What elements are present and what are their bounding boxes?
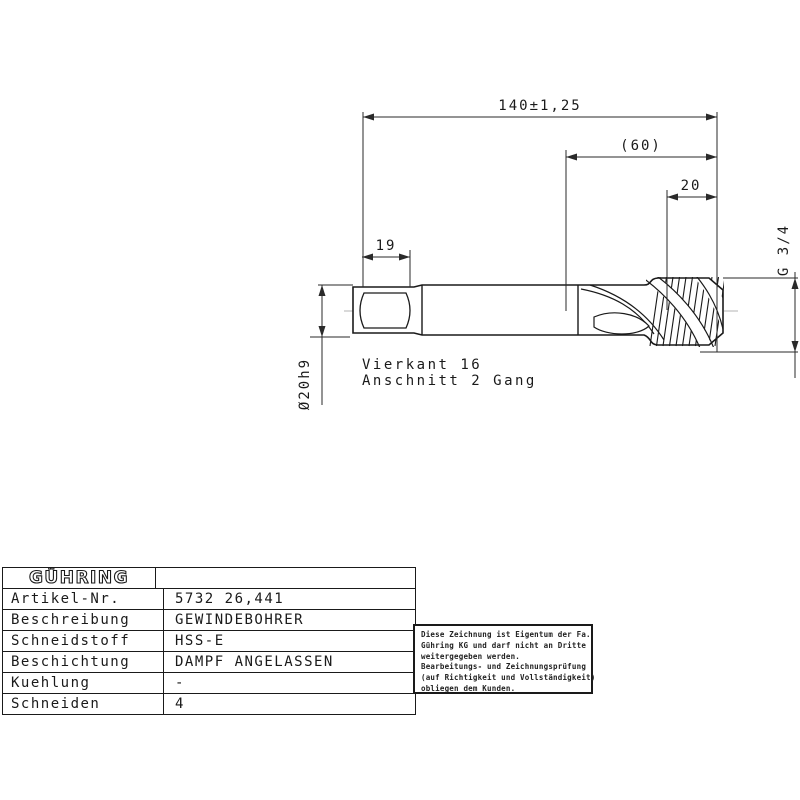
row-value: GEWINDEBOHRER: [164, 610, 415, 630]
disclaimer-line: obliegen dem Kunden.: [421, 684, 591, 695]
row-value: DAMPF ANGELASSEN: [164, 652, 415, 672]
disclaimer-line: Bearbeitungs- und Zeichnungsprüfung: [421, 662, 591, 673]
disclaimer-box: Diese Zeichnung ist Eigentum der Fa. Güh…: [413, 624, 593, 694]
row-value: 5732 26,441: [164, 589, 415, 609]
square-drive: [360, 293, 410, 328]
guehring-logo-icon: GÜHRING: [19, 568, 139, 588]
dim-thread-size: G 3/4: [776, 224, 792, 276]
row-label: Kuehlung: [3, 673, 164, 693]
row-label: Beschreibung: [3, 610, 164, 630]
note-square-drive: Vierkant 16: [362, 357, 482, 373]
row-value: 4: [164, 694, 415, 714]
row-label: Schneidstoff: [3, 631, 164, 651]
dim-overall-length: 140±1,25: [498, 98, 581, 114]
technical-drawing: 140±1,25 (60) 20 19 Ø20h9 G 3/4 Vierkant…: [0, 0, 800, 560]
dim-flute-length: (60): [620, 138, 662, 154]
brand-row-spacer: [156, 568, 415, 588]
table-row: Schneidstoff HSS-E: [3, 630, 415, 651]
row-label: Schneiden: [3, 694, 164, 714]
table-row: Kuehlung -: [3, 672, 415, 693]
disclaimer-line: (auf Richtigkeit und Vollständigkeit): [421, 673, 591, 684]
table-row: Beschreibung GEWINDEBOHRER: [3, 609, 415, 630]
table-row: Beschichtung DAMPF ANGELASSEN: [3, 651, 415, 672]
brand-logo: GÜHRING: [3, 568, 156, 588]
disclaimer-line: Diese Zeichnung ist Eigentum der Fa.: [421, 630, 591, 641]
row-label: Beschichtung: [3, 652, 164, 672]
table-row: Artikel-Nr. 5732 26,441: [3, 588, 415, 609]
row-label: Artikel-Nr.: [3, 589, 164, 609]
svg-text:GÜHRING: GÜHRING: [29, 568, 129, 588]
spec-table: GÜHRING Artikel-Nr. 5732 26,441 Beschrei…: [2, 567, 416, 715]
dim-shank-diameter: Ø20h9: [297, 358, 313, 410]
row-value: HSS-E: [164, 631, 415, 651]
brand-row: GÜHRING: [3, 568, 415, 588]
table-row: Schneiden 4: [3, 693, 415, 714]
drawing-sheet: 140±1,25 (60) 20 19 Ø20h9 G 3/4 Vierkant…: [0, 0, 800, 800]
disclaimer-line: weitergegeben werden.: [421, 652, 591, 663]
dim-thread-length: 20: [681, 178, 702, 194]
dim-square-length: 19: [376, 238, 397, 254]
note-lead-chamfer: Anschnitt 2 Gang: [362, 373, 537, 389]
row-value: -: [164, 673, 415, 693]
disclaimer-line: Gühring KG und darf nicht an Dritte: [421, 641, 591, 652]
